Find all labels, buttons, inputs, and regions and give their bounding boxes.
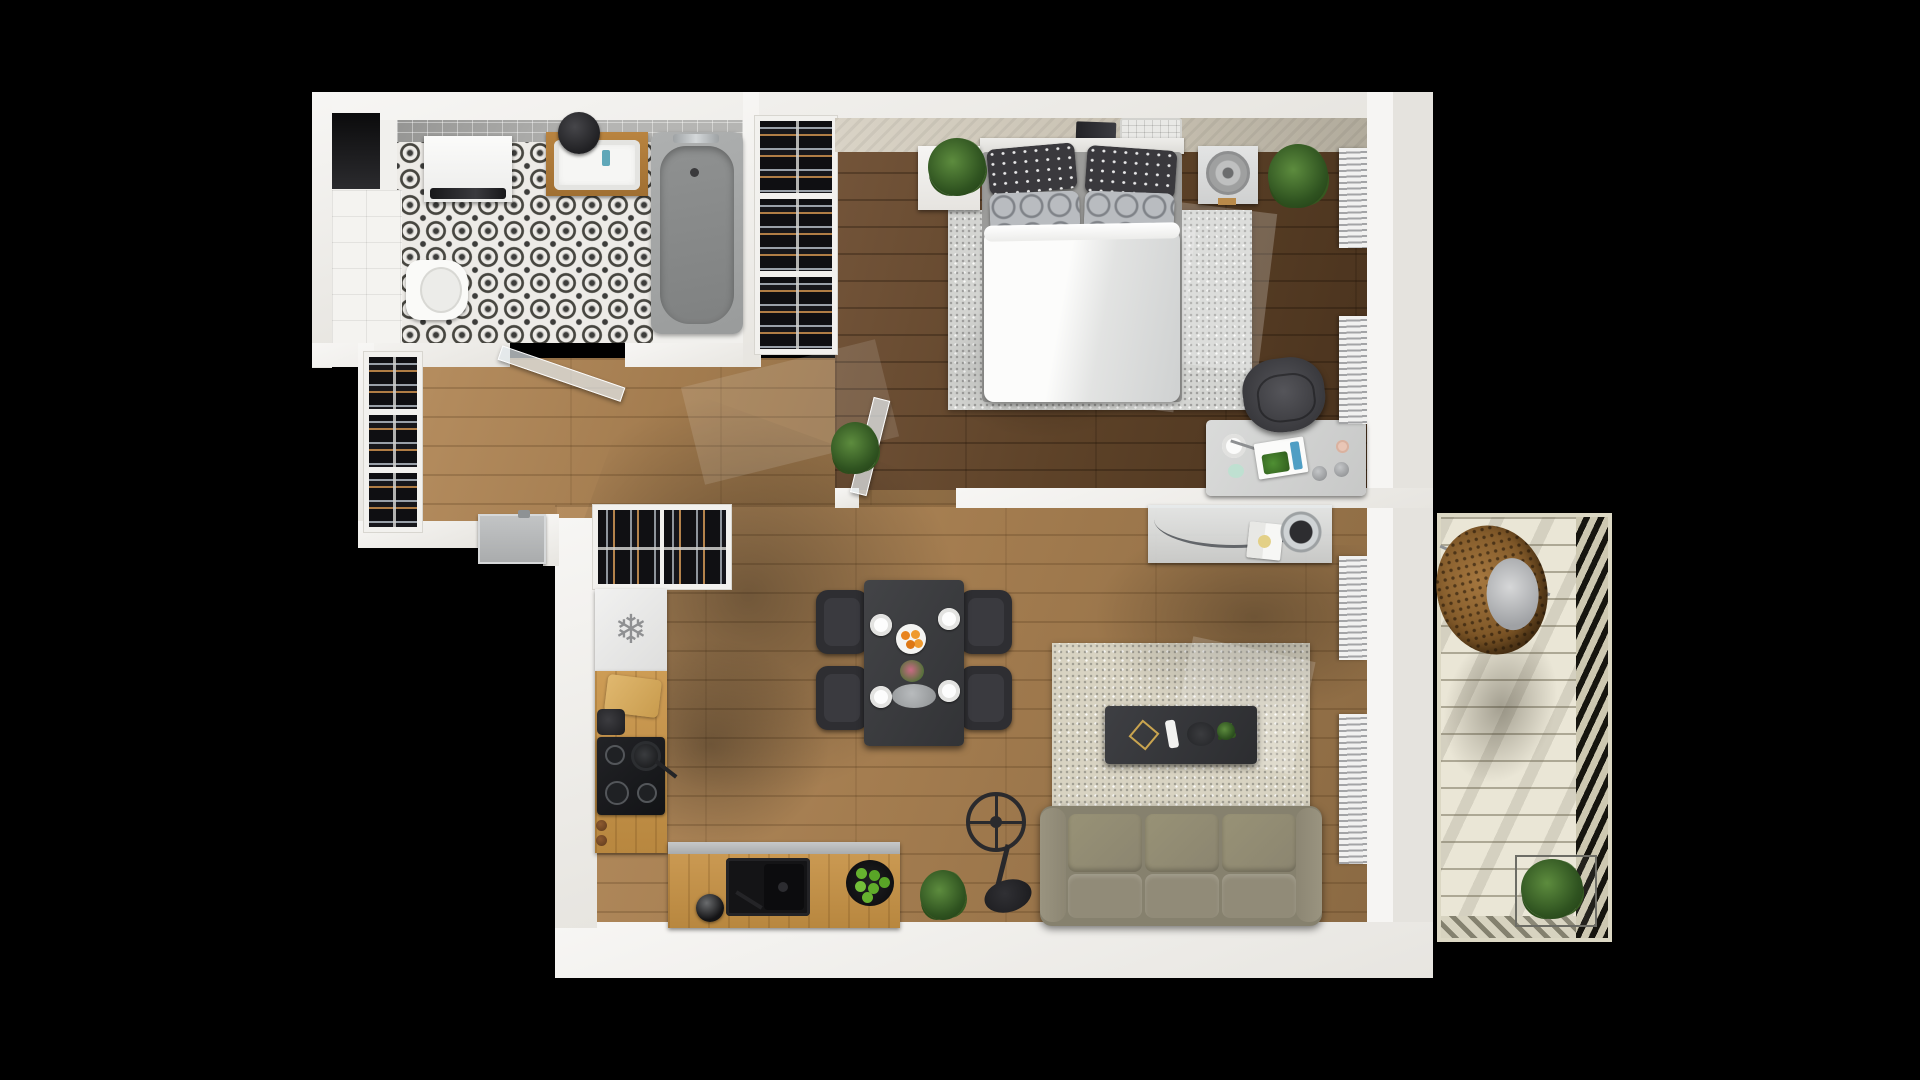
fridge: ❄ xyxy=(595,589,667,671)
apples xyxy=(856,868,867,879)
fan-hub xyxy=(990,816,1002,828)
kitchen-plant xyxy=(920,870,966,920)
sofa-cushion-2 xyxy=(1145,814,1219,872)
shoe-rail-3 xyxy=(393,473,396,527)
coffee-table xyxy=(1105,706,1257,764)
flower-vase xyxy=(900,660,924,682)
wardrobe-section-1 xyxy=(760,121,832,193)
black-faucet xyxy=(735,890,763,909)
counter-knob-1 xyxy=(596,820,607,831)
fan-grille xyxy=(1206,151,1250,195)
desk-knob-2 xyxy=(1334,462,1349,477)
wardrobe-rail-3 xyxy=(796,277,799,349)
tv-remote xyxy=(1165,719,1180,748)
dining-chair-left-bottom xyxy=(816,666,868,730)
counter-knob-2 xyxy=(596,835,607,846)
wall-kitchen-west xyxy=(555,518,597,928)
gold-wire-decor xyxy=(1129,720,1160,751)
bathtub-faucet xyxy=(673,134,719,143)
desk-candle xyxy=(1336,440,1349,453)
book-yellow-dot xyxy=(1257,534,1271,548)
desk-knob-1 xyxy=(1312,466,1327,481)
balcony xyxy=(1437,513,1612,942)
sofa-seat-front-2 xyxy=(1145,874,1219,918)
floor-plan-scene: ❄ xyxy=(0,0,1920,1080)
dining-table xyxy=(864,580,964,746)
place-setting-1 xyxy=(870,614,892,636)
nightstand-plant xyxy=(928,138,986,196)
cutlery-compartment-right xyxy=(664,510,726,584)
kettle xyxy=(696,894,724,922)
snowflake-icon: ❄ xyxy=(614,610,648,650)
induction-hob xyxy=(597,737,665,815)
sofa-seat-front-1 xyxy=(1068,874,1142,918)
stand-fan-head xyxy=(966,792,1026,852)
burner-2 xyxy=(605,781,629,805)
toothbrush-cup xyxy=(602,150,610,166)
wardrobe-rail-1 xyxy=(796,121,799,193)
chair-seat-3 xyxy=(968,598,1004,646)
bedroom-open-wardrobe xyxy=(755,116,837,354)
bathroom-side-counter xyxy=(332,190,402,343)
burner-1 xyxy=(605,745,625,765)
kitchen-lower-counter xyxy=(668,842,900,928)
magazine-art-green xyxy=(1261,451,1290,475)
tv-console-glass xyxy=(1148,505,1332,563)
dining-floor-plant xyxy=(831,422,879,474)
counter-back-edge xyxy=(668,842,900,854)
balcony-plant xyxy=(1521,859,1583,919)
utility-faucet xyxy=(518,510,530,518)
bathtub-drain xyxy=(690,168,699,177)
coffee-maker xyxy=(597,709,625,735)
bedroom-plant xyxy=(1268,144,1328,208)
utility-unit xyxy=(478,514,546,564)
sofa-cushion-1 xyxy=(1068,814,1142,872)
fruit-plate xyxy=(896,624,926,654)
coffee-table-plant xyxy=(1217,722,1235,740)
place-setting-3 xyxy=(870,686,892,708)
cutlery-sideboard xyxy=(593,505,731,589)
pan xyxy=(631,741,661,771)
bed-duvet-fold xyxy=(984,222,1180,241)
wall-right xyxy=(1367,92,1433,978)
wardrobe-section-3 xyxy=(760,277,832,349)
bedroom-fan-unit xyxy=(1198,146,1258,204)
place-setting-2 xyxy=(938,608,960,630)
dining-chair-left-top xyxy=(816,590,868,654)
bed-duvet xyxy=(984,230,1180,402)
bathtub xyxy=(651,132,743,334)
sink-drain xyxy=(778,882,788,892)
sofa-seat-front-3 xyxy=(1222,874,1296,918)
open-book xyxy=(1246,521,1284,560)
fan-unit-base-notch xyxy=(1218,198,1236,205)
orange-fruit xyxy=(901,631,910,640)
cutlery-compartment-left xyxy=(598,510,660,584)
office-chair-seam xyxy=(1255,370,1318,425)
living-radiator-1 xyxy=(1339,556,1367,660)
console-round-mirror xyxy=(1280,511,1322,553)
shoe-rail-1 xyxy=(393,357,396,409)
wall-bottom xyxy=(555,922,1433,978)
living-radiator-2 xyxy=(1339,714,1367,864)
wall-left-upper xyxy=(312,92,332,368)
pillow-polkadot-left xyxy=(986,142,1078,195)
hanging-egg-chair xyxy=(1423,514,1561,667)
sofa-arm-right xyxy=(1296,808,1322,922)
shoe-cabinet xyxy=(364,352,422,532)
washing-machine xyxy=(424,136,512,202)
desk-coaster xyxy=(1228,464,1244,478)
sofa-arm-left xyxy=(1040,808,1066,922)
burner-3 xyxy=(637,783,657,803)
shoe-cabinet-shelf-2 xyxy=(369,415,417,467)
round-mirror xyxy=(558,112,600,154)
dining-chair-right-top xyxy=(960,590,1012,654)
black-sink xyxy=(726,858,810,916)
apple-bowl xyxy=(846,860,894,906)
place-setting-4 xyxy=(938,680,960,702)
shoe-cabinet-shelf-1 xyxy=(369,357,417,409)
wardrobe-section-2 xyxy=(760,199,832,271)
cutlery-rail-right xyxy=(664,547,726,550)
round-tray xyxy=(1187,722,1215,746)
bedroom-radiator-2 xyxy=(1339,316,1367,424)
cutlery-rail-left xyxy=(598,547,660,550)
shoe-cabinet-shelf-3 xyxy=(369,473,417,527)
chair-seat-4 xyxy=(968,674,1004,722)
magazine-strip-blue xyxy=(1290,441,1303,470)
washing-machine-door-band xyxy=(430,188,506,199)
toilet xyxy=(406,260,468,320)
desk-magazine xyxy=(1253,436,1308,479)
wall-bathroom-south-right xyxy=(625,343,761,367)
toilet-seat xyxy=(420,267,462,313)
sofa-cushion-3 xyxy=(1222,814,1296,872)
shoe-rail-2 xyxy=(393,415,396,467)
chair-cushion xyxy=(1485,557,1539,631)
entry-door-niche xyxy=(332,113,380,189)
chair-seat-2 xyxy=(824,674,860,722)
bedroom-radiator-1 xyxy=(1339,148,1367,248)
serving-tray xyxy=(892,684,936,708)
wardrobe-rail-2 xyxy=(796,199,799,271)
dining-chair-right-bottom xyxy=(960,666,1012,730)
chair-seat-1 xyxy=(824,598,860,646)
sofa xyxy=(1040,806,1322,926)
wall-top xyxy=(312,92,1393,120)
